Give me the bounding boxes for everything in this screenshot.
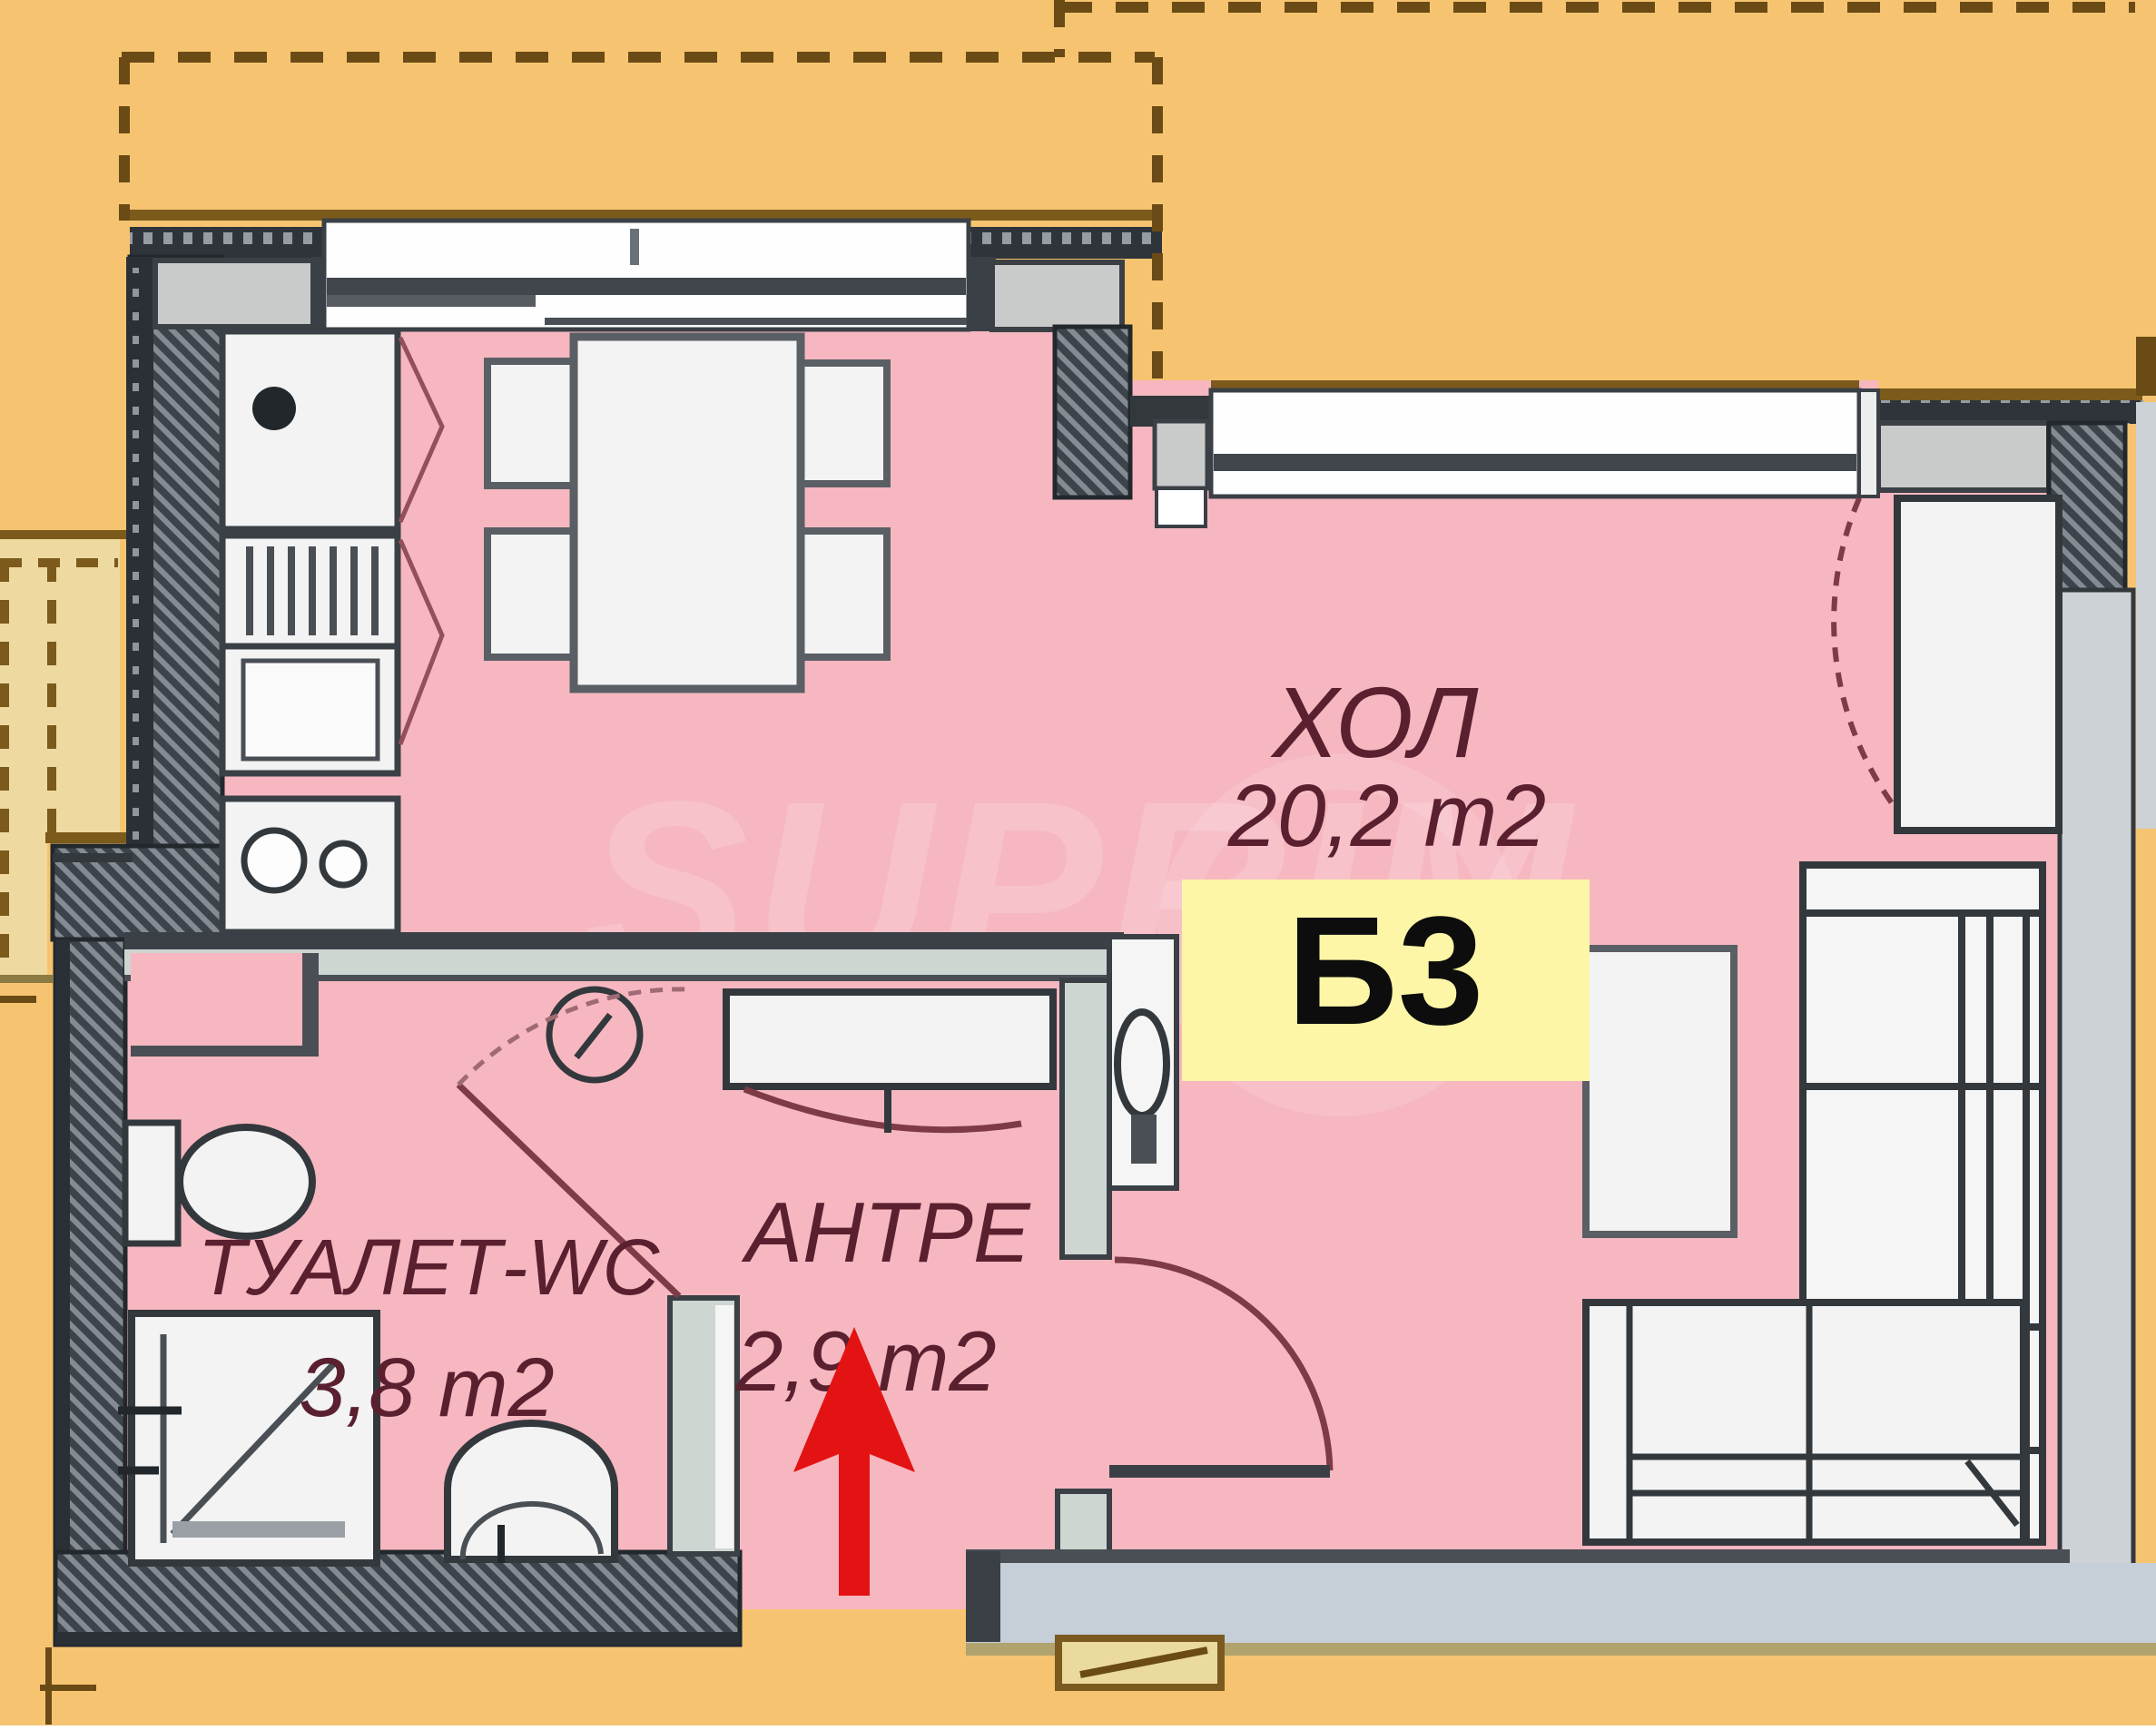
svg-text:3,8 m2: 3,8 m2 [299,1342,554,1434]
svg-text:20,2 m2: 20,2 m2 [1227,766,1547,865]
svg-text:ХОЛ: ХОЛ [1270,667,1480,779]
svg-text:ТУАЛЕТ-WC: ТУАЛЕТ-WC [198,1224,661,1312]
svg-text:Б3: Б3 [1287,885,1484,1057]
svg-text:АНТРЕ: АНТРЕ [741,1184,1031,1280]
